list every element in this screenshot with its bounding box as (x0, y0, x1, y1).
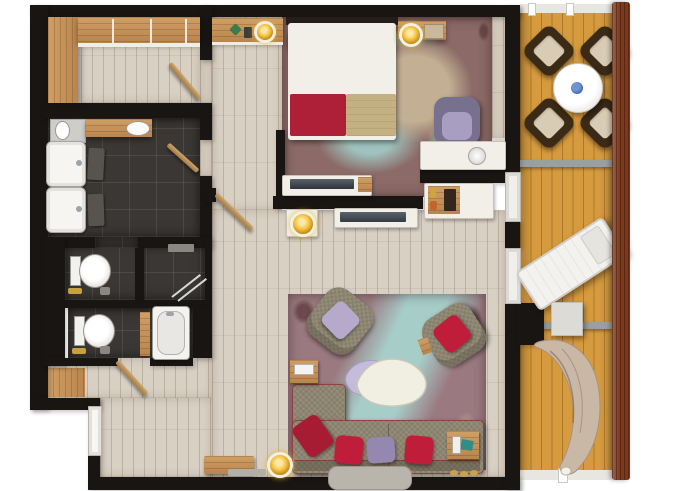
phone-icon (244, 27, 252, 38)
wc1-toiletries (68, 288, 82, 294)
bathtub-shelf (140, 312, 150, 356)
wc2-toiletries (72, 348, 86, 354)
nightstand-tray (424, 24, 444, 39)
wall-closet-right-upper (200, 5, 212, 60)
wc-shower-threshold (95, 237, 138, 248)
bedroom-armchair-seat (442, 112, 472, 140)
lounger-drape (534, 340, 600, 474)
wall-right-mid (505, 220, 520, 248)
wall-desk-nook (420, 168, 507, 183)
wall-right-upper (505, 5, 520, 172)
closet-door-threshold (200, 60, 212, 103)
sink-1-faucet (76, 160, 82, 166)
balcony-top-post-2 (566, 3, 574, 16)
wall-bath-right-lower (200, 176, 212, 237)
hall-doormat (228, 469, 266, 476)
wardrobe-divider-2 (150, 19, 152, 43)
covered-hanging-lounger (528, 333, 618, 478)
side-table-right-figure (452, 436, 461, 454)
bedroom-console-box (358, 177, 372, 192)
wardrobe-left (48, 17, 78, 103)
wardrobe-divider-3 (185, 19, 187, 43)
wc2-toilet-bowl (83, 314, 115, 348)
wc2-towel (100, 346, 110, 354)
slipper-2 (460, 471, 468, 477)
bedroom-floor-strip (492, 17, 505, 140)
sliding-door-bedroom (505, 172, 521, 222)
entry-lower-floor (100, 398, 212, 477)
minibar-fridge (444, 189, 456, 211)
wall-wc1-right (205, 237, 212, 308)
minibar-bottle-orange (430, 201, 437, 210)
wall-wc-divider-vert (135, 248, 144, 300)
deck-divider-1 (520, 160, 612, 167)
entry-wood-mat (47, 368, 85, 397)
wall-wc-left (43, 237, 65, 366)
dining-chair-nw-cushion (532, 34, 566, 68)
table-blue-bowl (571, 82, 583, 94)
sink-2-faucet (76, 206, 82, 212)
sofa-pillow-purple (366, 436, 396, 464)
wc1-toilet-bowl (79, 254, 111, 288)
bath-mat-2 (87, 194, 104, 227)
living-console-lamp (290, 211, 316, 237)
wall-closet-bath-divider (43, 103, 212, 118)
bathroom-magnifier-mirror (55, 121, 70, 140)
bed-throw-red (290, 94, 346, 136)
wall-wc2-right (193, 308, 212, 358)
living-floor-lamp (267, 452, 293, 478)
bed-throw-tan (346, 94, 396, 136)
living-tv (340, 212, 406, 222)
bathtub-faucet (166, 312, 174, 316)
dining-chair-sw-cushion (532, 106, 566, 140)
ottoman-bench (328, 466, 412, 490)
l-shaped-sofa (292, 384, 484, 473)
balcony-side-table (551, 302, 583, 336)
bedroom-lamp-right (399, 23, 423, 47)
wardrobe-divider (112, 19, 114, 43)
bathtub-basin (157, 311, 185, 355)
hallway-floor (212, 17, 282, 210)
balcony-top-post (528, 3, 536, 16)
entry-door (88, 406, 102, 456)
wardrobe-shelf-edge (78, 43, 200, 47)
bath-mat-1 (87, 148, 105, 181)
balcony-railing (612, 2, 630, 480)
shower-shelf (168, 244, 194, 252)
desk-bowl (468, 147, 486, 165)
lounger-tip (561, 467, 571, 475)
floor-plan (0, 0, 680, 491)
sofa-pillow-red-1 (334, 435, 365, 466)
side-table-right-book (460, 439, 474, 451)
wardrobe-top (78, 17, 200, 43)
hall-console-lamp (254, 21, 276, 43)
vessel-basin (126, 121, 150, 136)
wall-top (30, 5, 520, 17)
side-table-left-book (294, 364, 314, 375)
bedroom-tv (290, 179, 354, 189)
sofa-pillow-red-2 (404, 435, 434, 465)
hall-console-edge (212, 42, 283, 45)
bathroom-door-threshold (200, 140, 212, 176)
wall-wc2-bottom-left (43, 358, 118, 366)
wall-bath-right-upper (200, 118, 212, 140)
slipper-3 (470, 470, 478, 476)
minibar-bottle-gold (430, 188, 436, 198)
bedroom-desk (420, 141, 506, 170)
slipper-1 (450, 470, 458, 476)
wc1-towel (100, 287, 110, 295)
wall-bottom (88, 477, 520, 490)
